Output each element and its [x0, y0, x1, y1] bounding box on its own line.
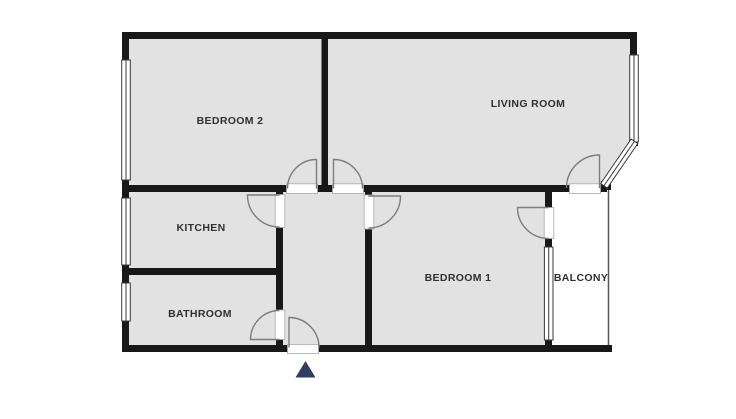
room-label-bedroom2: BEDROOM 2: [197, 115, 264, 127]
bedroom1-balcony-window: [544, 247, 553, 340]
room-label-kitchen: KITCHEN: [176, 222, 225, 234]
wall-top: [122, 32, 637, 39]
room-bedroom2-floor: [129, 39, 322, 185]
room-label-bathroom: BATHROOM: [168, 308, 232, 320]
living-hall-door-gap: [333, 184, 364, 194]
bedroom2-door-gap: [287, 184, 318, 194]
room-label-living-room: LIVING ROOM: [491, 98, 565, 110]
living-room-window: [630, 55, 639, 142]
bedroom1-balcony-door-gap: [544, 208, 554, 239]
bathroom-door-gap: [275, 310, 285, 340]
bedroom1-door-gap: [364, 195, 374, 229]
living-balcony-door-gap: [570, 184, 601, 194]
room-label-bedroom1: BEDROOM 1: [425, 272, 492, 284]
room-hallway-floor: [283, 192, 365, 345]
wall-kitchen-bathroom: [122, 268, 283, 275]
floor-plan-svg: BEDROOM 2 LIVING ROOM KITCHEN BATHROOM B…: [0, 0, 736, 419]
wall-bedroom2-living-divider: [322, 32, 329, 192]
entrance-door-gap: [288, 344, 319, 353]
entrance-arrow-icon: [296, 361, 316, 378]
kitchen-door-gap: [275, 195, 285, 228]
room-living-floor: [328, 39, 634, 188]
floor-plan: BEDROOM 2 LIVING ROOM KITCHEN BATHROOM B…: [0, 0, 736, 419]
kitchen-window: [122, 198, 131, 265]
room-label-balcony: BALCONY: [554, 272, 608, 284]
room-balcony-floor: [552, 192, 608, 345]
bathroom-window: [122, 283, 131, 321]
bedroom2-window: [122, 60, 131, 180]
wall-main-horizontal: [122, 185, 607, 192]
